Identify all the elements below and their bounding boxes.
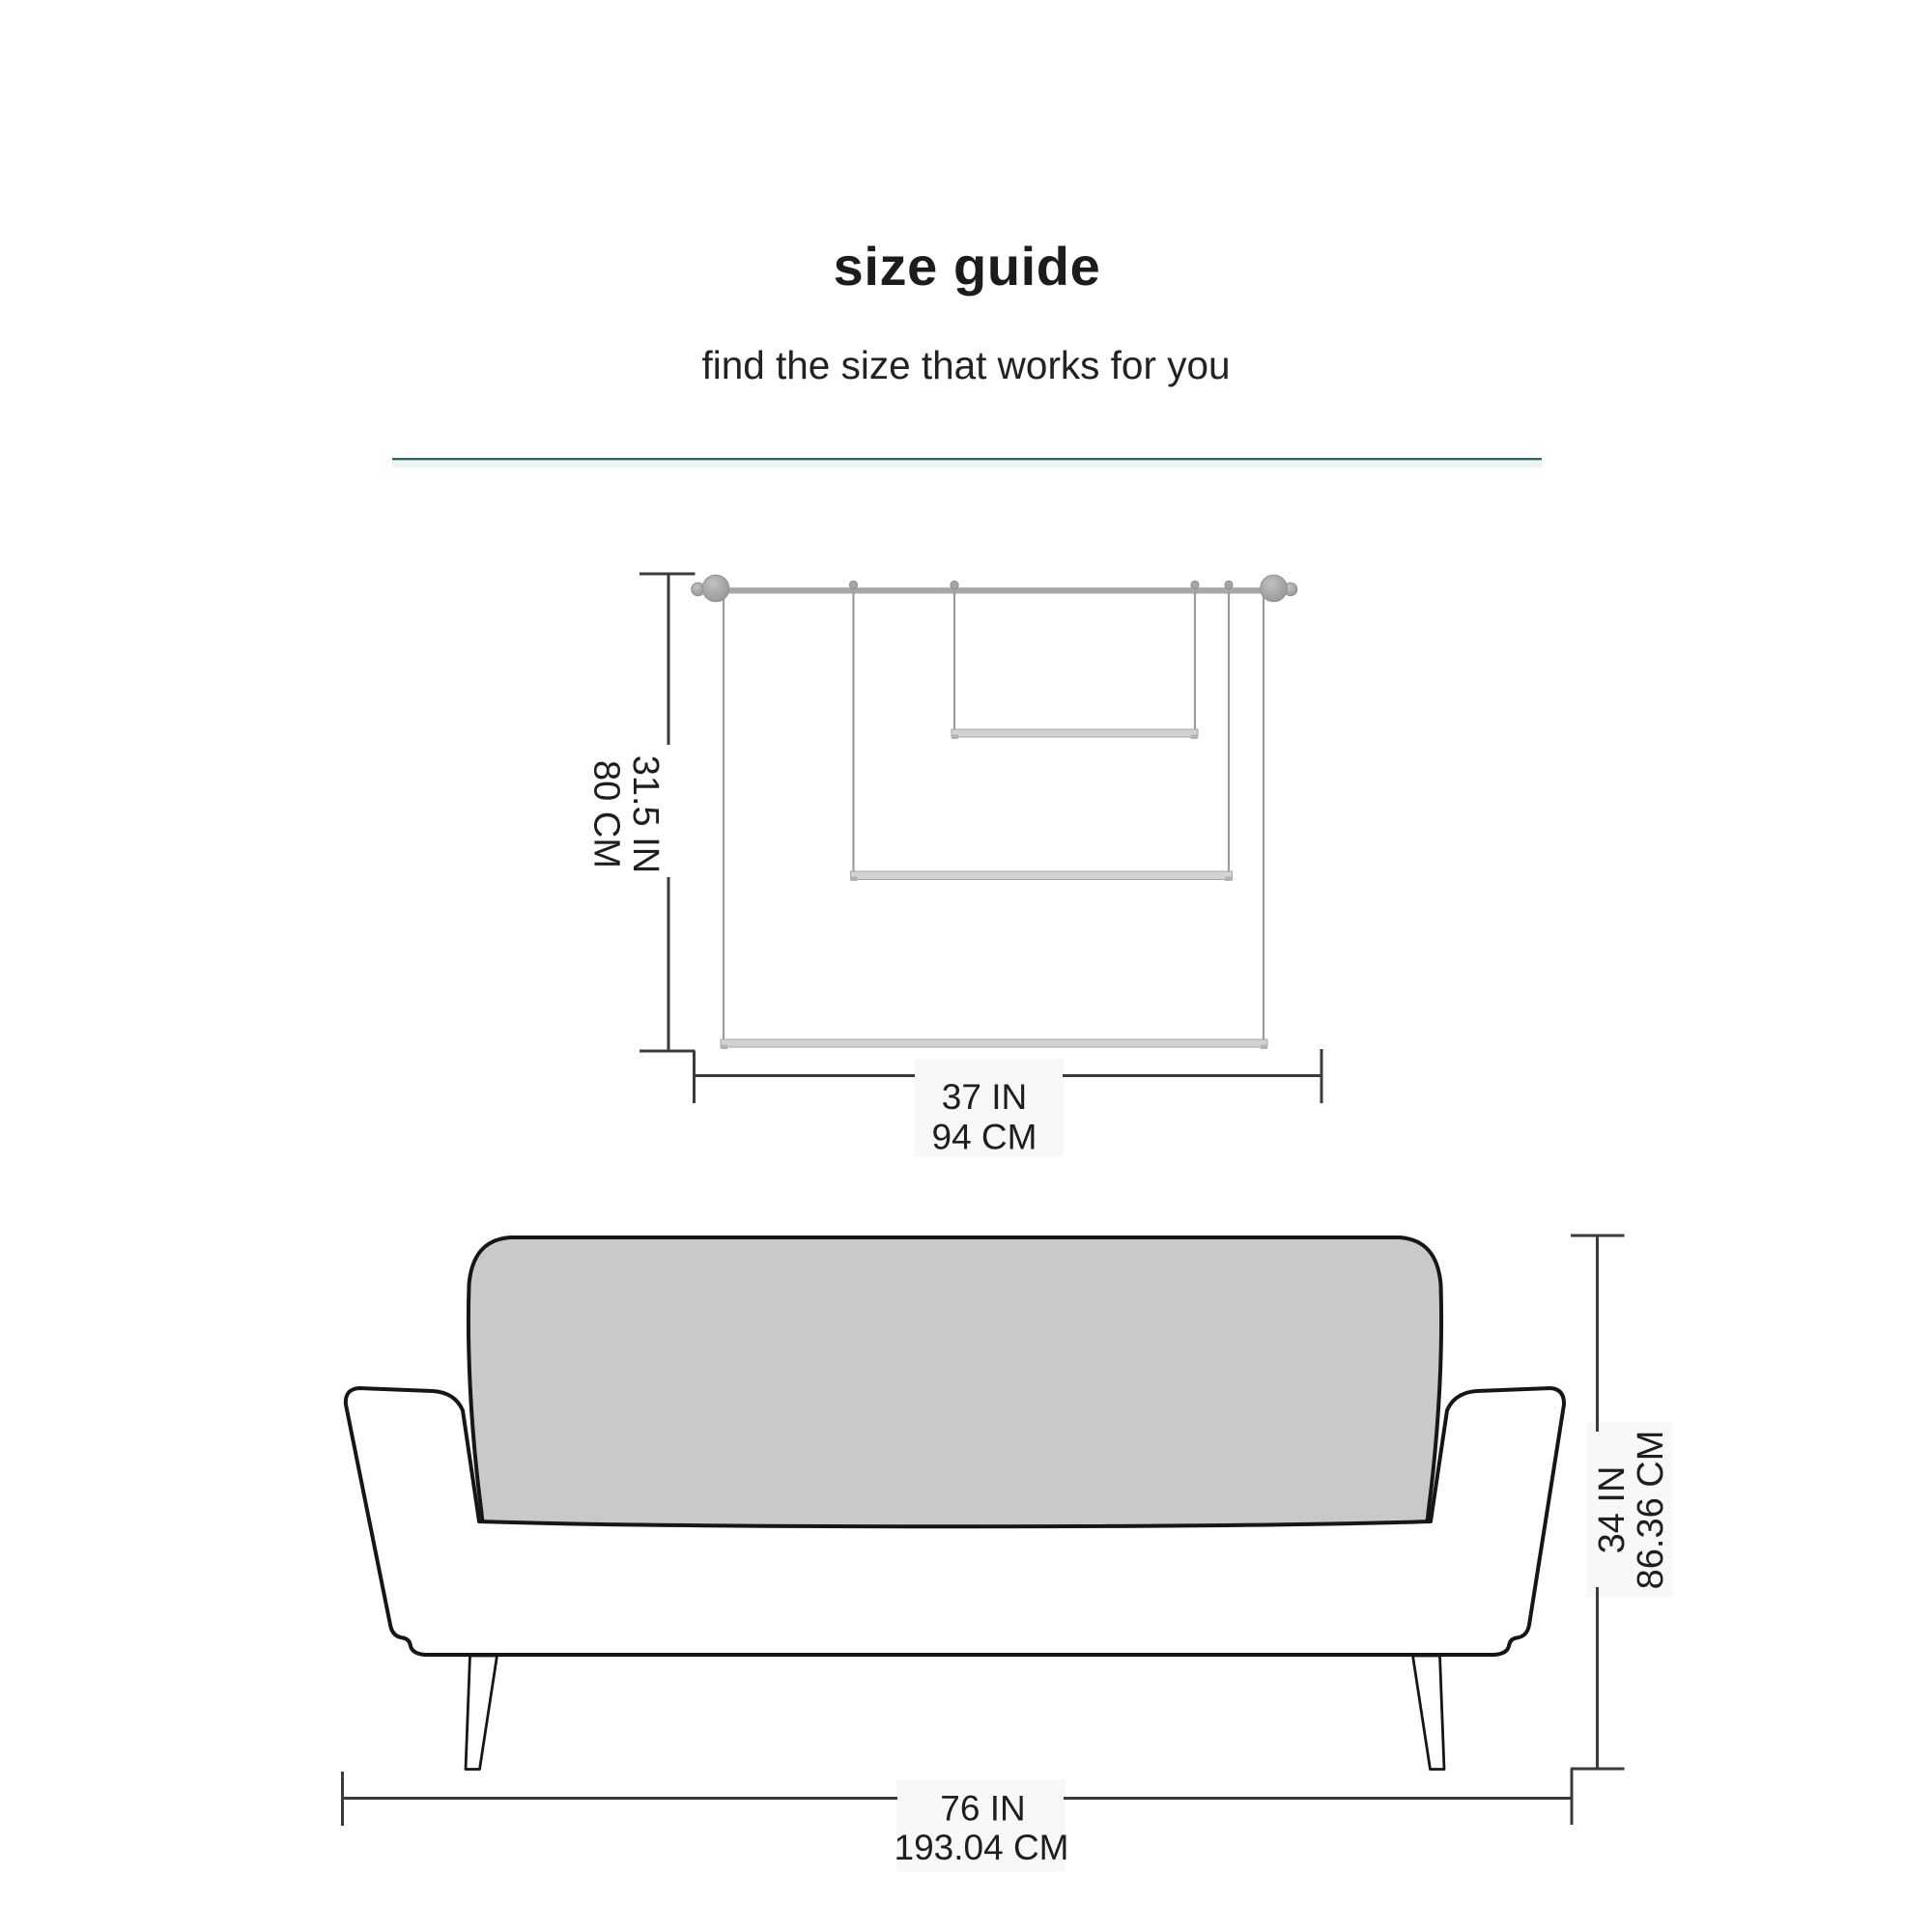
svg-text:80 CM: 80 CM (586, 760, 627, 868)
svg-text:size guide: size guide (834, 236, 1101, 297)
svg-text:76 IN: 76 IN (940, 1789, 1025, 1829)
svg-text:find the size that works for y: find the size that works for you (701, 343, 1230, 387)
svg-text:37 IN: 37 IN (942, 1077, 1027, 1117)
svg-text:193.04 CM: 193.04 CM (895, 1828, 1069, 1867)
svg-text:31.5 IN: 31.5 IN (625, 755, 666, 874)
svg-text:86.36 CM: 86.36 CM (1631, 1431, 1671, 1590)
svg-text:94 CM: 94 CM (932, 1118, 1037, 1157)
svg-text:34 IN: 34 IN (1592, 1466, 1633, 1554)
